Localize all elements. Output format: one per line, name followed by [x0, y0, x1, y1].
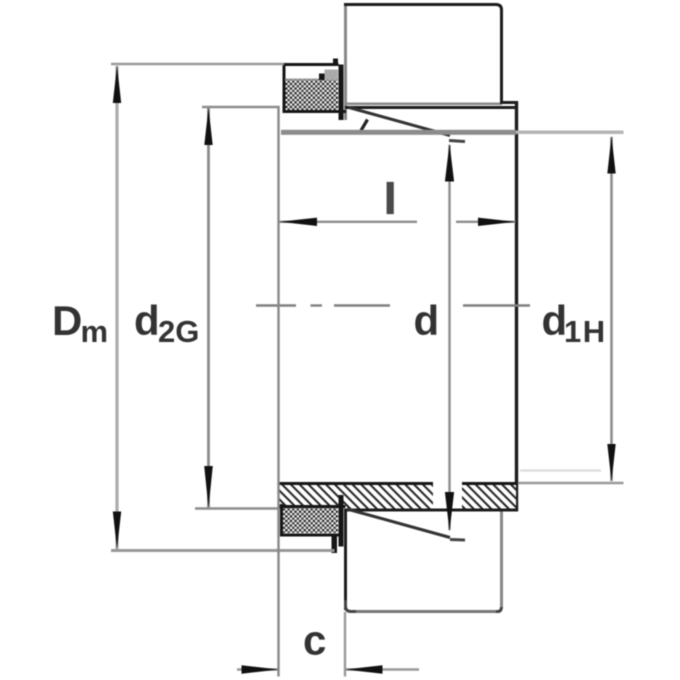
svg-text:m: m	[81, 314, 109, 349]
svg-text:d: d	[134, 297, 160, 344]
svg-text:c: c	[303, 617, 326, 664]
svg-text:1H: 1H	[564, 314, 607, 349]
svg-text:l: l	[384, 176, 396, 224]
svg-text:d: d	[414, 297, 440, 344]
svg-text:D: D	[52, 297, 82, 344]
svg-text:2G: 2G	[158, 314, 199, 349]
